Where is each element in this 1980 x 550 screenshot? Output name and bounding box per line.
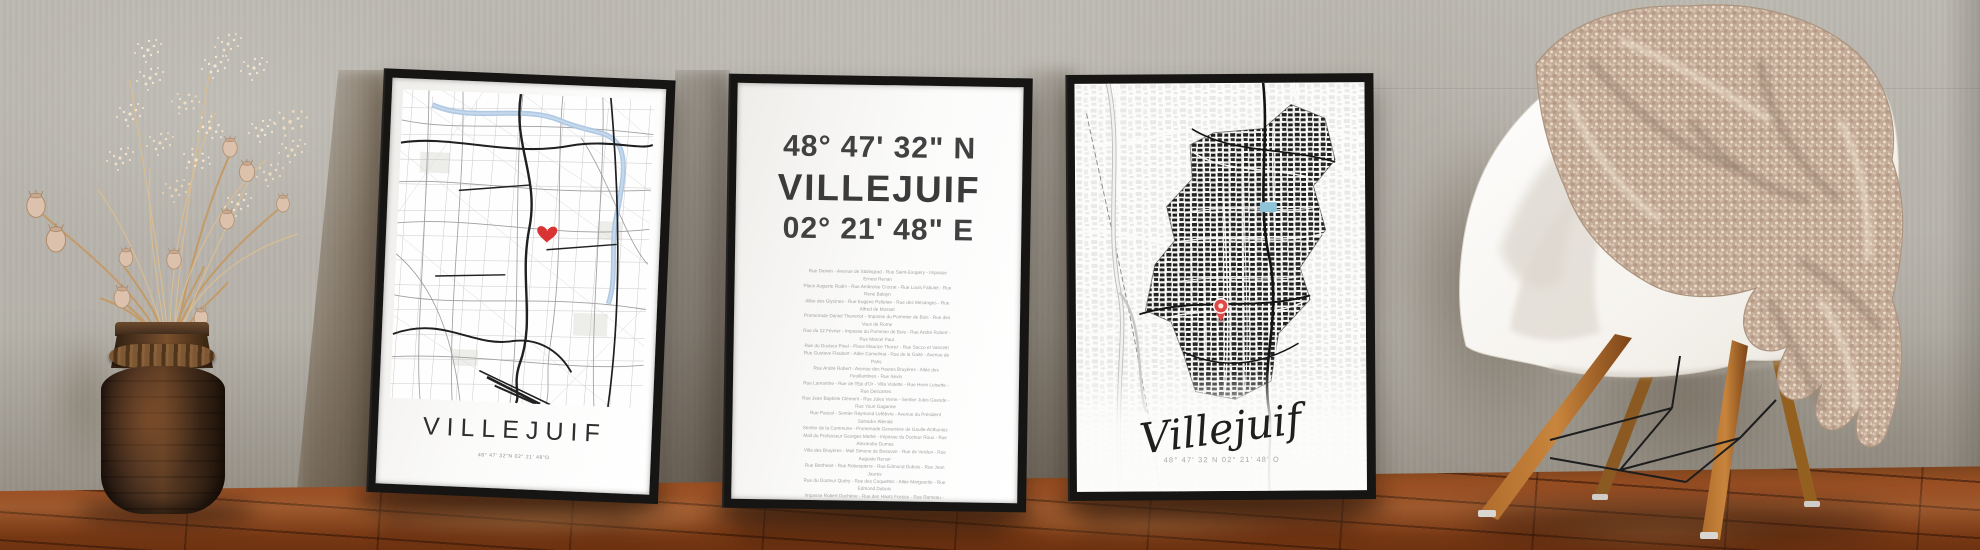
latitude-text: 48° 47' 32" N (736, 129, 1022, 167)
poster-street-map-frame: VILLEJUIF 48° 47' 32"N 02° 21' 48"O (366, 68, 675, 504)
swimming-pool (1260, 202, 1277, 212)
poster-right-coordinates: 48° 47' 32 N 02° 21' 48' O (1164, 455, 1280, 465)
poster-street-map-paper: VILLEJUIF 48° 47' 32"N 02° 21' 48"O (375, 78, 666, 495)
vase-body (101, 366, 225, 514)
poster-reflection (1085, 507, 1355, 535)
room-scene: VILLEJUIF 48° 47' 32"N 02° 21' 48"O 48° … (0, 0, 1980, 550)
poster-city-map-paper: Villejuif 48° 47' 32 N 02° 21' 48' O (1074, 82, 1366, 492)
vase-rim (115, 322, 209, 336)
poster-city-map-frame: Villejuif 48° 47' 32 N 02° 21' 48' O (1065, 73, 1376, 501)
longitude-text: 02° 21' 48" E (735, 211, 1021, 249)
shell-chair (1440, 0, 1980, 550)
poster-coordinates-frame: 48° 47' 32" N VILLEJUIF 02° 21' 48" E Ru… (722, 74, 1033, 513)
poster-left-coordinates: 48° 47' 32"N 02° 21' 48"O (437, 450, 591, 462)
poster-coordinates-paper: 48° 47' 32" N VILLEJUIF 02° 21' 48" E Ru… (731, 83, 1023, 503)
street-line: Impasse Robert Duchêne - Rue des Hauts F… (800, 491, 949, 503)
street-map-svg (390, 89, 655, 408)
vase-rope-band (109, 344, 215, 368)
poster-reflection (380, 505, 630, 535)
poster-left-title: VILLEJUIF (377, 410, 652, 450)
street-name-list: Rue Darwin - Avenue de Stalingrad - Rue … (799, 267, 953, 503)
coordinates-block: 48° 47' 32" N VILLEJUIF 02° 21' 48" E (735, 129, 1023, 249)
wooden-vase (101, 322, 225, 514)
city-map: Villejuif 48° 47' 32 N 02° 21' 48' O (1074, 82, 1366, 492)
city-map-svg: Villejuif 48° 47' 32 N 02° 21' 48' O (1074, 82, 1366, 492)
poppy-pods (27, 135, 290, 326)
poster-center-title: VILLEJUIF (736, 166, 1023, 212)
babys-breath (106, 33, 309, 217)
poster-reflection (740, 515, 1000, 543)
street-map (390, 89, 655, 408)
